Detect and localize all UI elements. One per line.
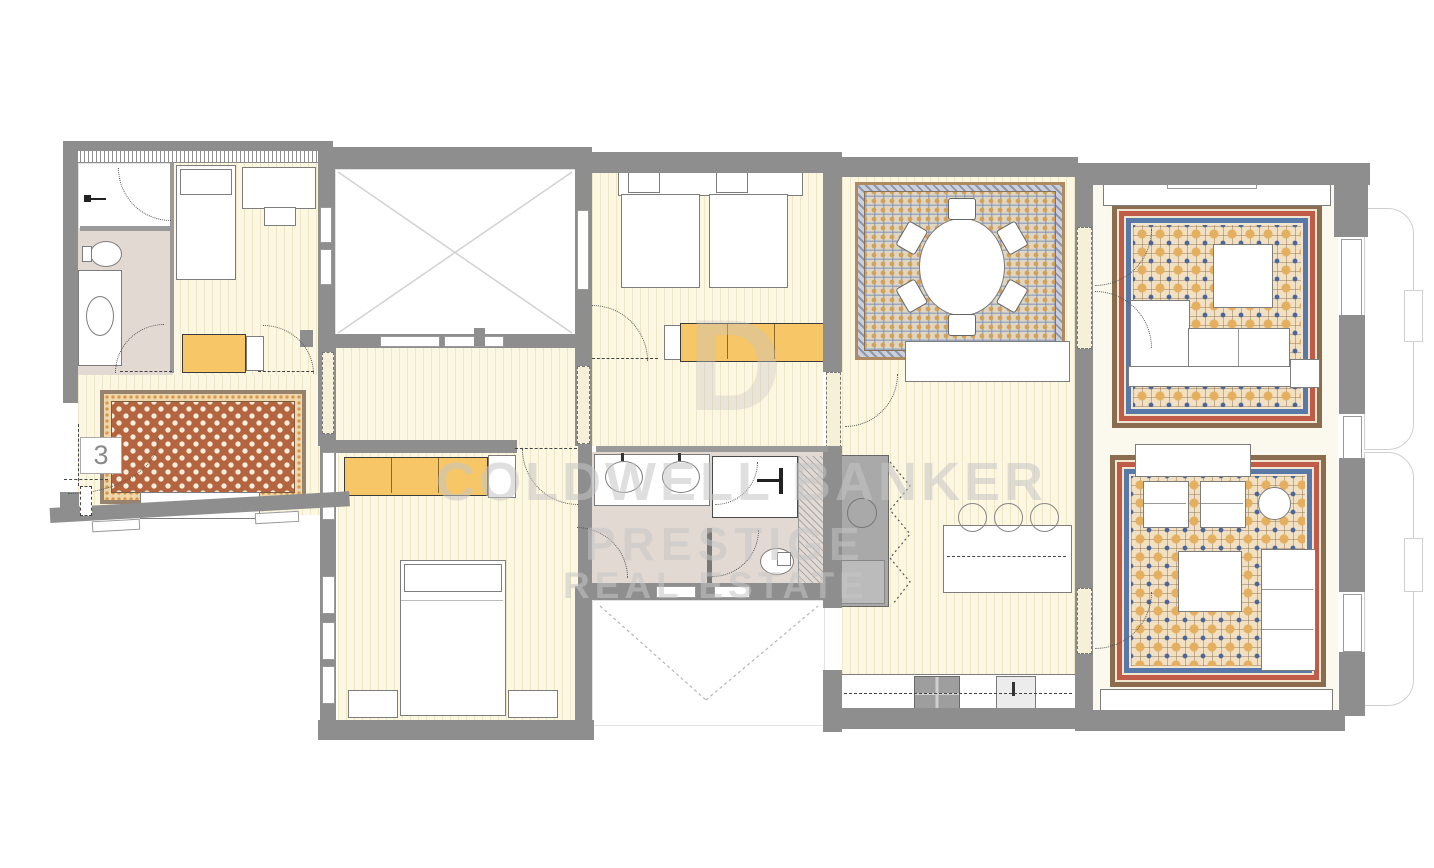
door-post xyxy=(474,328,485,346)
tap-icon xyxy=(621,453,624,461)
coffee-table xyxy=(1178,551,1242,612)
kitchen-unit-shelf xyxy=(839,560,885,604)
window xyxy=(577,210,589,290)
bar-stool xyxy=(1030,503,1059,532)
window-sill xyxy=(380,336,440,347)
wall xyxy=(333,147,578,169)
sofa-cushion-line xyxy=(1262,589,1313,590)
floor-hallway xyxy=(335,348,578,446)
dining-chair xyxy=(948,198,976,220)
window xyxy=(1343,416,1362,460)
threshold xyxy=(120,371,172,372)
wall-opening xyxy=(577,366,590,444)
wall xyxy=(1078,163,1370,185)
threshold xyxy=(64,479,108,480)
dresser-divider xyxy=(774,324,775,359)
nightstand xyxy=(242,167,316,209)
counter-line xyxy=(844,693,1072,694)
floor-plan: 3 D COLDWELL BANKER PRESTIGE REAL ESTATE xyxy=(0,0,1434,868)
wardrobe-divider xyxy=(438,458,439,493)
shower-curb xyxy=(80,226,172,231)
wall xyxy=(1334,163,1368,237)
wall xyxy=(823,152,842,372)
armchair xyxy=(1143,481,1189,528)
window-sill xyxy=(656,586,696,598)
floor-patio-1 xyxy=(335,169,577,338)
party-wall-hatch xyxy=(67,150,331,163)
bench-end xyxy=(246,336,264,371)
bar-stool xyxy=(958,503,987,532)
wardrobe-yellow xyxy=(344,457,488,496)
wall xyxy=(575,586,592,728)
window-sill xyxy=(714,586,750,598)
wall xyxy=(318,147,335,349)
shower-valve-icon xyxy=(779,468,783,494)
wardrobe-divider xyxy=(391,458,392,493)
side-table xyxy=(264,207,296,226)
tap-icon xyxy=(678,453,681,461)
wall xyxy=(1339,652,1365,716)
balcony-step xyxy=(1404,538,1423,592)
armchair xyxy=(1200,481,1246,528)
kitchen-sink-round xyxy=(847,498,877,528)
toilet xyxy=(90,241,122,267)
unit-number-label: 3 xyxy=(80,437,122,474)
door-opening xyxy=(1077,588,1092,654)
cooktop xyxy=(914,676,960,712)
threshold xyxy=(515,448,577,449)
bathroom-wall xyxy=(596,446,828,452)
dresser-divider xyxy=(727,324,728,359)
wall xyxy=(826,157,1078,177)
window xyxy=(322,452,335,520)
wall xyxy=(1339,458,1365,592)
shower-arm-icon xyxy=(90,198,106,200)
window-sill xyxy=(255,511,300,524)
window xyxy=(320,249,332,285)
threshold xyxy=(592,358,658,359)
twin-bed-right xyxy=(709,194,788,288)
window xyxy=(322,666,335,704)
washbasin xyxy=(662,461,700,493)
bed-sheet-line xyxy=(401,600,503,601)
bench-yellow xyxy=(182,334,246,373)
armchair-line xyxy=(1201,503,1243,504)
bed-pillow xyxy=(716,171,748,193)
credenza xyxy=(905,341,1070,382)
threshold xyxy=(258,371,314,372)
armchair-line xyxy=(1144,503,1186,504)
wall xyxy=(335,440,517,453)
wardrobe-end xyxy=(488,455,516,498)
toilet-flush xyxy=(777,552,791,566)
bed-pillows xyxy=(404,564,502,592)
floor-patio-2 xyxy=(592,600,825,726)
duct-shaft xyxy=(798,456,825,584)
balcony-step xyxy=(1404,290,1423,342)
doorway xyxy=(826,372,841,448)
wall xyxy=(1090,710,1345,731)
dining-chair xyxy=(948,314,976,336)
wall xyxy=(1339,315,1365,414)
kitchen-island xyxy=(943,525,1072,593)
sofa xyxy=(1261,549,1316,671)
washbasin xyxy=(605,461,643,493)
window-sill xyxy=(92,519,141,533)
dresser-yellow xyxy=(680,323,824,362)
wall xyxy=(1075,700,1093,731)
side-table xyxy=(1290,359,1320,388)
nightstand xyxy=(508,690,558,718)
entry-door-leaf xyxy=(80,486,92,516)
double-door-opening xyxy=(1077,227,1092,349)
wall xyxy=(63,141,78,403)
bar-stool xyxy=(994,503,1023,532)
window xyxy=(320,207,332,243)
wall-opening xyxy=(322,352,334,434)
sofa-back xyxy=(1128,366,1292,387)
window xyxy=(1341,239,1362,317)
bed-pillow xyxy=(180,169,232,195)
window xyxy=(1343,594,1362,652)
dining-table xyxy=(919,218,1005,316)
washbasin xyxy=(86,296,114,336)
nightstand xyxy=(348,690,398,718)
window xyxy=(322,576,335,614)
shower-arm-icon xyxy=(757,479,779,482)
console-table xyxy=(1135,444,1251,477)
wall xyxy=(318,720,594,740)
wall xyxy=(833,708,1079,729)
sofa-cushion-line xyxy=(1238,329,1239,369)
twin-bed-left xyxy=(621,194,700,288)
wall xyxy=(578,152,826,173)
round-side-table xyxy=(1258,487,1291,520)
sofa-cushion-line xyxy=(1262,629,1313,630)
window xyxy=(322,622,335,660)
bed-pillow xyxy=(628,171,660,193)
island-counter-line xyxy=(947,556,1066,557)
toilet-tank xyxy=(82,246,92,262)
door-leaf xyxy=(78,424,79,486)
coffee-table xyxy=(1213,244,1273,308)
